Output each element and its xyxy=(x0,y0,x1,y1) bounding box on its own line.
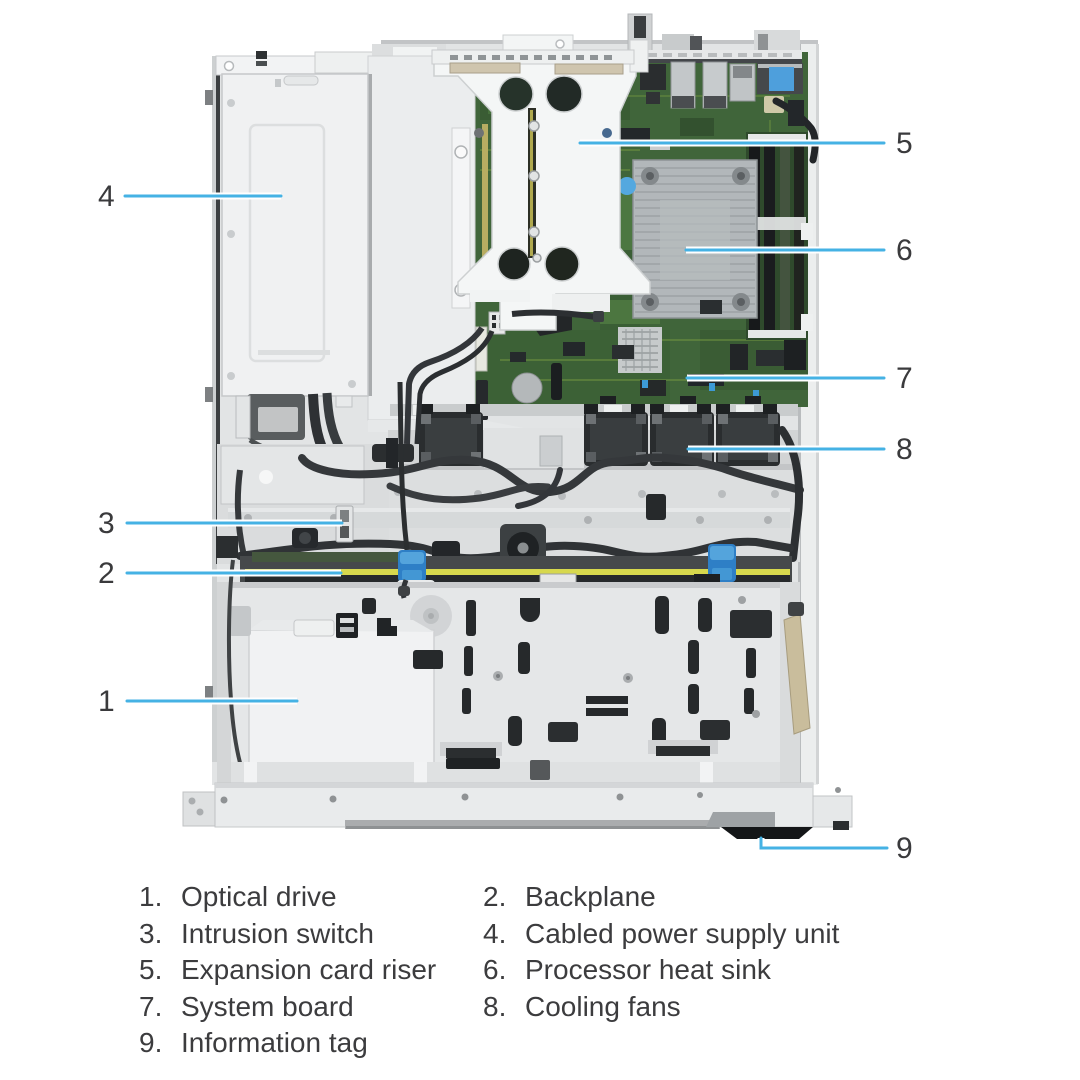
svg-text:2.: 2. xyxy=(483,881,506,912)
svg-text:7: 7 xyxy=(896,362,913,395)
svg-text:3: 3 xyxy=(98,507,115,540)
svg-text:7.: 7. xyxy=(139,991,162,1022)
svg-text:Cabled power supply unit: Cabled power supply unit xyxy=(525,918,840,949)
svg-text:8: 8 xyxy=(896,433,913,466)
svg-text:3.: 3. xyxy=(139,918,162,949)
svg-text:6.: 6. xyxy=(483,954,506,985)
svg-text:1: 1 xyxy=(98,685,115,718)
svg-text:4.: 4. xyxy=(483,918,506,949)
svg-text:9: 9 xyxy=(896,832,913,865)
svg-text:Cooling fans: Cooling fans xyxy=(525,991,681,1022)
svg-text:System board: System board xyxy=(181,991,354,1022)
svg-text:5.: 5. xyxy=(139,954,162,985)
svg-text:8.: 8. xyxy=(483,991,506,1022)
svg-text:9.: 9. xyxy=(139,1027,162,1058)
svg-text:Backplane: Backplane xyxy=(525,881,656,912)
svg-text:Information tag: Information tag xyxy=(181,1027,368,1058)
svg-text:1.: 1. xyxy=(139,881,162,912)
svg-text:2: 2 xyxy=(98,557,115,590)
svg-text:4: 4 xyxy=(98,180,115,213)
svg-text:Expansion card riser: Expansion card riser xyxy=(181,954,436,985)
svg-text:Optical drive: Optical drive xyxy=(181,881,337,912)
svg-text:6: 6 xyxy=(896,234,913,267)
svg-text:5: 5 xyxy=(896,127,913,160)
svg-text:Intrusion switch: Intrusion switch xyxy=(181,918,374,949)
svg-text:Processor heat sink: Processor heat sink xyxy=(525,954,772,985)
